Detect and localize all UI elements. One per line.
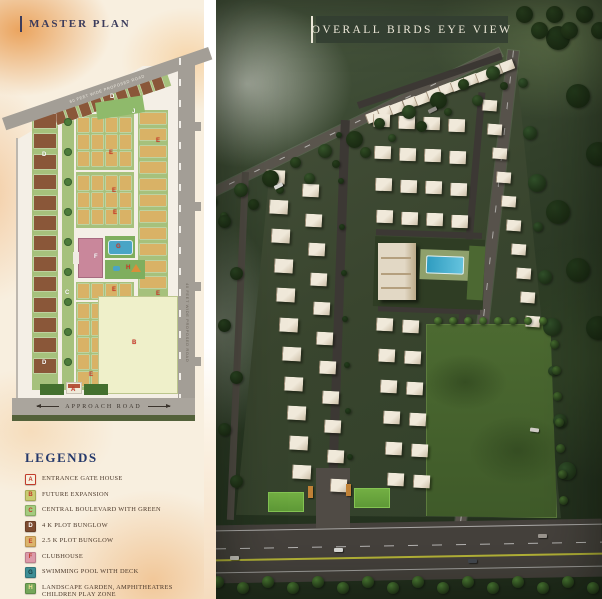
car (538, 534, 547, 538)
plot (106, 135, 117, 149)
tree (290, 157, 301, 168)
road-stub (194, 122, 201, 131)
house (402, 320, 420, 334)
house (289, 435, 309, 450)
house (271, 229, 291, 244)
tree (479, 317, 487, 325)
plot (34, 175, 56, 189)
house (375, 178, 392, 192)
tree (402, 105, 416, 119)
house (424, 149, 441, 163)
plot (34, 338, 56, 352)
plot (106, 193, 117, 207)
plot (78, 284, 89, 298)
house (482, 99, 498, 111)
tree (412, 576, 424, 588)
tree (347, 454, 353, 460)
title-accent-bar (311, 16, 313, 43)
tree (337, 582, 349, 594)
legend-letter-box: H (25, 583, 36, 594)
plot (120, 193, 131, 207)
tree (434, 317, 442, 325)
legend-item: GSWIMMING POOL WITH DECK (25, 567, 197, 578)
plot (34, 236, 56, 250)
tree (304, 173, 315, 184)
tree (237, 582, 249, 594)
entrance-driveway (316, 468, 350, 528)
tree (558, 470, 567, 479)
site-boundary-wall (16, 138, 18, 398)
tree (234, 183, 248, 197)
house (451, 214, 468, 228)
house (506, 219, 522, 231)
house (425, 181, 442, 195)
house (450, 182, 467, 196)
tree (218, 423, 231, 436)
tree (523, 126, 537, 140)
legend-item-label: CENTRAL BOULEVARD WITH GREEN (42, 505, 161, 514)
house (384, 442, 402, 456)
plot (140, 129, 166, 140)
house (286, 406, 306, 421)
house (316, 331, 334, 345)
legends-section: LEGENDS AENTRANCE GATE HOUSEBFUTURE EXPA… (25, 450, 197, 599)
tree (546, 6, 563, 23)
legend-item: AENTRANCE GATE HOUSE (25, 474, 197, 485)
plot (78, 338, 89, 352)
birds-eye-panel: OVERALL BIRDS EYE VIEW (216, 0, 602, 599)
plot (120, 210, 131, 224)
tree (462, 576, 474, 588)
landscape-garden-zone (105, 260, 145, 279)
legend-letter-box: B (25, 490, 36, 501)
house (400, 179, 417, 193)
plan-marker: E (112, 287, 116, 293)
tree (287, 582, 299, 594)
green-field (426, 324, 557, 518)
house (318, 361, 336, 375)
tree (387, 582, 399, 594)
house (321, 390, 339, 404)
tree (318, 144, 332, 158)
house (268, 199, 288, 214)
house (327, 449, 345, 463)
plot (78, 193, 89, 207)
amphitheatre-icon (131, 264, 141, 272)
plot (92, 152, 103, 166)
house (330, 479, 348, 493)
house (378, 349, 396, 363)
master-plan-panel: MASTER PLAN 60 FEET WIDE PROPOSED ROAD (0, 0, 204, 599)
plot (120, 118, 131, 132)
tree (360, 147, 371, 158)
tree (464, 317, 472, 325)
boulevard-tree (64, 328, 72, 336)
boulevard-tree (64, 178, 72, 186)
tree (216, 576, 224, 588)
hedge (84, 384, 108, 395)
legend-item: D4 K PLOT BUNGLOW (25, 521, 197, 532)
tree (587, 582, 599, 594)
tree (341, 270, 347, 276)
plan-marker: G (116, 244, 121, 250)
plot (140, 179, 166, 190)
tree (550, 340, 559, 349)
boulevard-tree (64, 148, 72, 156)
tree (509, 317, 517, 325)
tree (230, 267, 243, 280)
plan-marker: E (89, 372, 93, 378)
clubhouse-porch (73, 252, 79, 264)
tree (546, 200, 570, 224)
tree (344, 362, 350, 368)
panel-divider (204, 0, 216, 599)
plot (34, 318, 56, 332)
house (501, 195, 517, 207)
house (281, 347, 301, 362)
tree (500, 82, 508, 90)
plot (120, 152, 131, 166)
plot (78, 152, 89, 166)
plot (140, 162, 166, 173)
house (496, 171, 512, 183)
plot (92, 135, 103, 149)
house (401, 211, 418, 225)
tree (518, 78, 528, 88)
roof-line (381, 287, 411, 289)
plan-marker: A (71, 387, 75, 393)
house (292, 465, 312, 480)
hedge (40, 384, 64, 395)
legend-item-label: SWIMMING POOL WITH DECK (42, 567, 139, 576)
house (324, 420, 342, 434)
legend-item-label: 2.5 K PLOT BUNGLOW (42, 536, 113, 545)
tree (248, 199, 259, 210)
plot (34, 257, 56, 271)
roadside-green-strip (12, 415, 195, 421)
plan-marker: F (94, 254, 98, 260)
house (406, 382, 424, 396)
house (307, 243, 325, 257)
legend-item-label: ENTRANCE GATE HOUSE (42, 474, 123, 483)
entrance-lawn (268, 492, 304, 512)
plot (140, 244, 166, 255)
tree (312, 576, 324, 588)
house (380, 380, 398, 394)
legend-item: E2.5 K PLOT BUNGLOW (25, 536, 197, 547)
right-road-label: 40 FEET WIDE PROPOSED ROAD (185, 283, 190, 362)
legends-title: LEGENDS (25, 450, 197, 466)
arrow-right-icon (148, 406, 170, 407)
house (413, 475, 431, 489)
plot (120, 135, 131, 149)
birds-eye-title: OVERALL BIRDS EYE VIEW (312, 24, 513, 36)
house (376, 210, 393, 224)
boulevard-tree (64, 268, 72, 276)
plot (78, 135, 89, 149)
tree (586, 316, 602, 340)
tree (437, 582, 449, 594)
plan-marker: E (109, 150, 113, 156)
house (310, 272, 328, 286)
club-garden (467, 246, 486, 301)
tree (449, 317, 457, 325)
legend-letter-box: C (25, 505, 36, 516)
car (230, 556, 239, 560)
house (515, 267, 531, 279)
tree (552, 366, 561, 375)
legend-letter-box: A (25, 474, 36, 485)
master-plan-diagram: 60 FEET WIDE PROPOSED ROAD 40 FEET WIDE … (10, 52, 200, 432)
roof-line (381, 257, 411, 259)
tree (561, 22, 578, 39)
house (449, 150, 466, 164)
entrance-lawn (354, 488, 390, 508)
tree (339, 224, 345, 230)
tree (262, 576, 274, 588)
legend-letter-box: F (25, 552, 36, 563)
plot (34, 277, 56, 291)
master-plan-title: MASTER PLAN (20, 16, 131, 32)
future-expansion-zone (98, 296, 178, 394)
boulevard-tree (64, 208, 72, 216)
legend-letter-box: E (25, 536, 36, 547)
tree (230, 475, 243, 488)
tree (388, 134, 396, 142)
plan-marker: J (132, 109, 135, 115)
road-median-dashes (179, 58, 181, 416)
house (448, 118, 465, 132)
plan-marker: D (42, 152, 46, 158)
tree (458, 79, 469, 90)
house (276, 288, 296, 303)
house (408, 413, 426, 427)
tree (494, 317, 502, 325)
legend-item-label: FUTURE EXPANSION (42, 490, 109, 499)
tree (512, 576, 524, 588)
tree (559, 496, 568, 505)
plot (78, 176, 89, 190)
gate-pillar (308, 486, 313, 498)
approach-road: APPROACH ROAD (12, 398, 195, 415)
legend-item: FCLUBHOUSE (25, 552, 197, 563)
house (486, 123, 502, 135)
clubhouse-zone (78, 238, 103, 278)
legend-item: BFUTURE EXPANSION (25, 490, 197, 501)
plot (34, 134, 56, 148)
plan-marker: B (132, 340, 136, 346)
tree (562, 576, 574, 588)
plot (92, 176, 103, 190)
tree (591, 22, 602, 39)
plot (34, 216, 56, 230)
house (374, 146, 391, 160)
tree (336, 132, 342, 138)
plot (140, 211, 166, 222)
tree (524, 317, 532, 325)
tree (332, 160, 340, 168)
tree (444, 108, 452, 116)
plot (92, 118, 103, 132)
approach-road-label: APPROACH ROAD (65, 404, 142, 410)
tree (539, 317, 547, 325)
plot (78, 210, 89, 224)
tree (566, 84, 590, 108)
tree (533, 222, 543, 232)
kids-pool-shape (113, 266, 120, 271)
tree (374, 118, 385, 129)
plan-marker: C (65, 290, 69, 296)
plot (92, 193, 103, 207)
house (273, 258, 293, 273)
plan-marker: H (126, 265, 130, 271)
right-proposed-road: 40 FEET WIDE PROPOSED ROAD (178, 58, 195, 416)
plot (140, 228, 166, 239)
road-stub (194, 202, 201, 211)
gate-pillar (346, 484, 351, 496)
legend-list: AENTRANCE GATE HOUSEBFUTURE EXPANSIONCCE… (25, 474, 197, 599)
clubhouse-building (378, 243, 416, 300)
house (491, 147, 507, 159)
poster: MASTER PLAN 60 FEET WIDE PROPOSED ROAD (0, 0, 602, 599)
tree (531, 22, 548, 39)
house (279, 317, 299, 332)
plot (140, 195, 166, 206)
tree (555, 418, 564, 427)
tree (486, 66, 500, 80)
tree (218, 319, 231, 332)
tree (538, 270, 552, 284)
tree (472, 95, 483, 106)
tree (556, 444, 565, 453)
tree (528, 174, 546, 192)
house (376, 318, 394, 332)
plot (34, 298, 56, 312)
roof-line (381, 273, 411, 275)
house (520, 291, 536, 303)
boulevard-tree (64, 298, 72, 306)
plot (140, 146, 166, 157)
house (426, 213, 443, 227)
tree (346, 131, 363, 148)
tree (516, 6, 533, 23)
tree (338, 178, 344, 184)
plan-marker: D (110, 94, 114, 100)
boulevard-tree (64, 238, 72, 246)
house (410, 444, 428, 458)
tree (342, 316, 348, 322)
tree (345, 408, 351, 414)
boulevard-tree (64, 358, 72, 366)
legend-item-label: CLUBHOUSE (42, 552, 83, 561)
plan-marker: E (156, 291, 160, 297)
tree (218, 215, 231, 228)
plan-marker: E (156, 138, 160, 144)
legend-letter-box: D (25, 521, 36, 532)
tree (216, 196, 217, 207)
road-stub (194, 282, 201, 291)
house (382, 411, 400, 425)
plot (34, 196, 56, 210)
swimming-pool (426, 255, 465, 274)
legend-letter-box: G (25, 567, 36, 578)
tree (553, 392, 562, 401)
house (313, 302, 331, 316)
plot (78, 321, 89, 335)
tree (230, 371, 243, 384)
house (284, 376, 304, 391)
plan-marker: E (113, 210, 117, 216)
plot (92, 210, 103, 224)
road-stub (194, 357, 201, 366)
tree (566, 258, 590, 282)
house (387, 473, 405, 487)
house (304, 213, 322, 227)
plot (140, 113, 166, 124)
house (302, 184, 320, 198)
boulevard-tree (64, 118, 72, 126)
house (404, 351, 422, 365)
plot (120, 176, 131, 190)
legend-item-label: LANDSCAPE GARDEN, AMPHITHEATRES CHILDREN… (42, 583, 197, 599)
birds-eye-title-box: OVERALL BIRDS EYE VIEW (316, 16, 508, 43)
tree (586, 142, 602, 166)
house (510, 243, 526, 255)
plot (78, 118, 89, 132)
legend-item-label: 4 K PLOT BUNGLOW (42, 521, 108, 530)
legend-item: HLANDSCAPE GARDEN, AMPHITHEATRES CHILDRE… (25, 583, 197, 599)
tree (487, 582, 499, 594)
tree (576, 6, 593, 23)
tree (537, 582, 549, 594)
plot (78, 304, 89, 318)
plan-marker: D (42, 360, 46, 366)
house (399, 147, 416, 161)
plot (78, 355, 89, 369)
arrow-left-icon (37, 406, 59, 407)
car (334, 548, 343, 552)
legend-item: CCENTRAL BOULEVARD WITH GREEN (25, 505, 197, 516)
tree (362, 576, 374, 588)
car (468, 559, 477, 563)
plan-marker: E (112, 188, 116, 194)
plot (106, 118, 117, 132)
tree (416, 121, 427, 132)
